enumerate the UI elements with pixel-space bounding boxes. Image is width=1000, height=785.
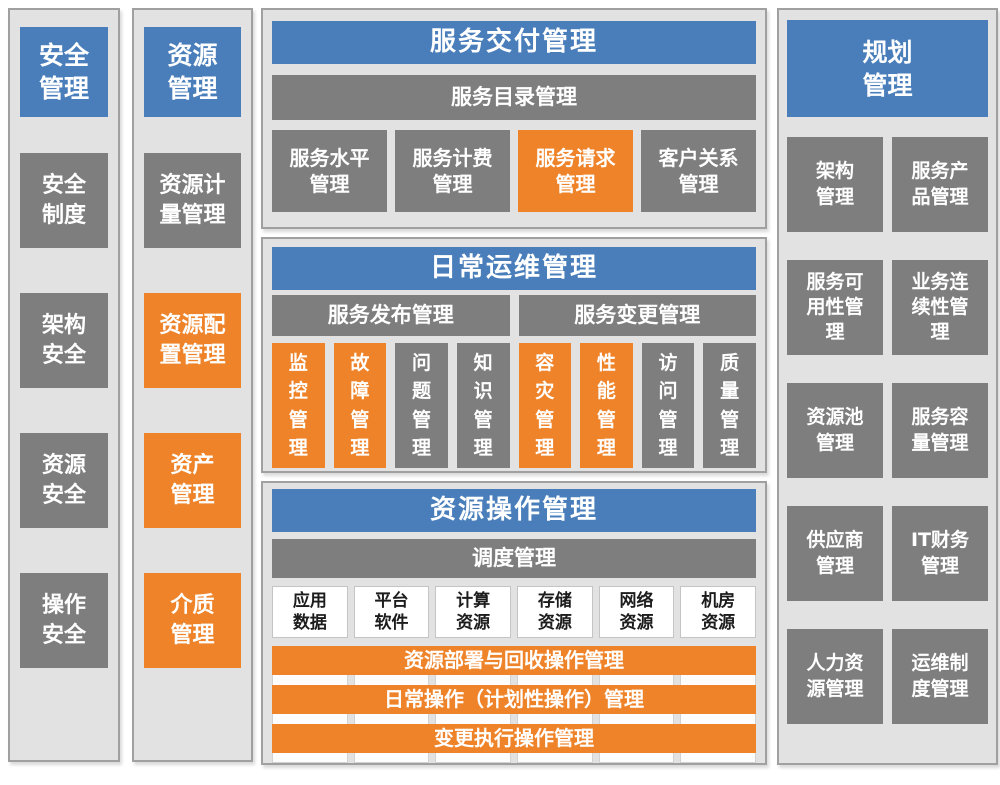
daily-operations-title: 日常运维管理 (272, 247, 756, 290)
itsm-framework-diagram: 安全 管理 安全 制度 架构 安全 资源 安全 操作 安全 资源 管理 资源计 … (0, 0, 1000, 785)
box-performance: 性 能 管 理 (580, 343, 633, 468)
box-business-continuity: 业务连 续性管 理 (892, 260, 988, 355)
box-resource-security: 资源 安全 (20, 433, 108, 528)
security-management-header: 安全 管理 (20, 27, 108, 117)
box-service-capacity: 服务容 量管理 (892, 383, 988, 478)
service-delivery-panel: 服务交付管理 服务目录管理 服务水平 管理 服务计费 管理 服务请求 管理 客户… (261, 8, 767, 229)
box-security-policy: 安全 制度 (20, 153, 108, 248)
box-ops-policy: 运维制 度管理 (892, 629, 988, 724)
box-service-level: 服务水平 管理 (272, 130, 387, 212)
operation-bars-stack: 资源部署与回收操作管理 日常操作（计划性操作）管理 变更执行操作管理 (272, 646, 756, 763)
resource-operations-title: 资源操作管理 (272, 489, 756, 532)
resource-types-row: 应用 数据 平台 软件 计算 资源 存储 资源 网络 资源 机房 资源 (272, 586, 756, 638)
box-service-request: 服务请求 管理 (518, 130, 633, 212)
change-execution-operations-bar: 变更执行操作管理 (272, 724, 756, 753)
box-app-data: 应用 数据 (272, 586, 348, 638)
box-service-availability: 服务可 用性管 理 (787, 260, 883, 355)
box-resource-metering: 资源计 量管理 (144, 153, 241, 248)
box-asset-management: 资产 管理 (144, 433, 241, 528)
box-resource-configuration: 资源配 置管理 (144, 293, 241, 388)
daily-operations-sub-bars: 服务发布管理 服务变更管理 (272, 295, 756, 336)
box-resource-pool: 资源池 管理 (787, 383, 883, 478)
box-architecture-security: 架构 安全 (20, 293, 108, 388)
box-disaster-recovery: 容 灾 管 理 (519, 343, 572, 468)
box-monitoring: 监 控 管 理 (272, 343, 325, 468)
box-compute-resource: 计算 资源 (435, 586, 511, 638)
service-delivery-row: 服务水平 管理 服务计费 管理 服务请求 管理 客户关系 管理 (272, 130, 756, 212)
box-quality: 质 量 管 理 (703, 343, 756, 468)
security-management-column: 安全 管理 安全 制度 架构 安全 资源 安全 操作 安全 (8, 8, 120, 762)
box-storage-resource: 存储 资源 (517, 586, 593, 638)
box-knowledge: 知 识 管 理 (457, 343, 510, 468)
resource-management-header: 资源 管理 (144, 27, 241, 117)
deploy-recycle-operations-bar: 资源部署与回收操作管理 (272, 646, 756, 675)
box-customer-relationship: 客户关系 管理 (641, 130, 756, 212)
daily-operations-panel: 日常运维管理 服务发布管理 服务变更管理 监 控 管 理 故 障 管 理 问 题… (261, 237, 767, 473)
daily-planned-operations-bar: 日常操作（计划性操作）管理 (272, 685, 756, 714)
planning-grid: 架构 管理 服务产 品管理 服务可 用性管 理 业务连 续性管 理 资源池 管理… (787, 137, 988, 724)
box-operation-security: 操作 安全 (20, 573, 108, 668)
box-service-product: 服务产 品管理 (892, 137, 988, 232)
service-change-bar: 服务变更管理 (519, 295, 757, 336)
box-datacenter-resource: 机房 资源 (680, 586, 756, 638)
box-service-billing: 服务计费 管理 (395, 130, 510, 212)
box-media-management: 介质 管理 (144, 573, 241, 668)
resource-operations-panel: 资源操作管理 调度管理 应用 数据 平台 软件 计算 资源 存储 资源 网络 资… (261, 481, 767, 765)
service-catalog-bar: 服务目录管理 (272, 75, 756, 120)
box-architecture-management: 架构 管理 (787, 137, 883, 232)
daily-operations-row: 监 控 管 理 故 障 管 理 问 题 管 理 知 识 管 理 容 灾 管 理 … (272, 343, 756, 468)
box-incident: 故 障 管 理 (334, 343, 387, 468)
dispatch-management-bar: 调度管理 (272, 539, 756, 578)
box-supplier-management: 供应商 管理 (787, 506, 883, 601)
box-it-finance: IT财务 管理 (892, 506, 988, 601)
box-access: 访 问 管 理 (642, 343, 695, 468)
resource-management-column: 资源 管理 资源计 量管理 资源配 置管理 资产 管理 介质 管理 (132, 8, 253, 762)
box-platform-software: 平台 软件 (354, 586, 430, 638)
box-problem: 问 题 管 理 (395, 343, 448, 468)
box-network-resource: 网络 资源 (599, 586, 675, 638)
planning-management-header: 规划 管理 (787, 20, 988, 117)
service-delivery-title: 服务交付管理 (272, 21, 756, 64)
service-release-bar: 服务发布管理 (272, 295, 510, 336)
planning-management-column: 规划 管理 架构 管理 服务产 品管理 服务可 用性管 理 业务连 续性管 理 … (777, 8, 998, 765)
box-human-resource: 人力资 源管理 (787, 629, 883, 724)
